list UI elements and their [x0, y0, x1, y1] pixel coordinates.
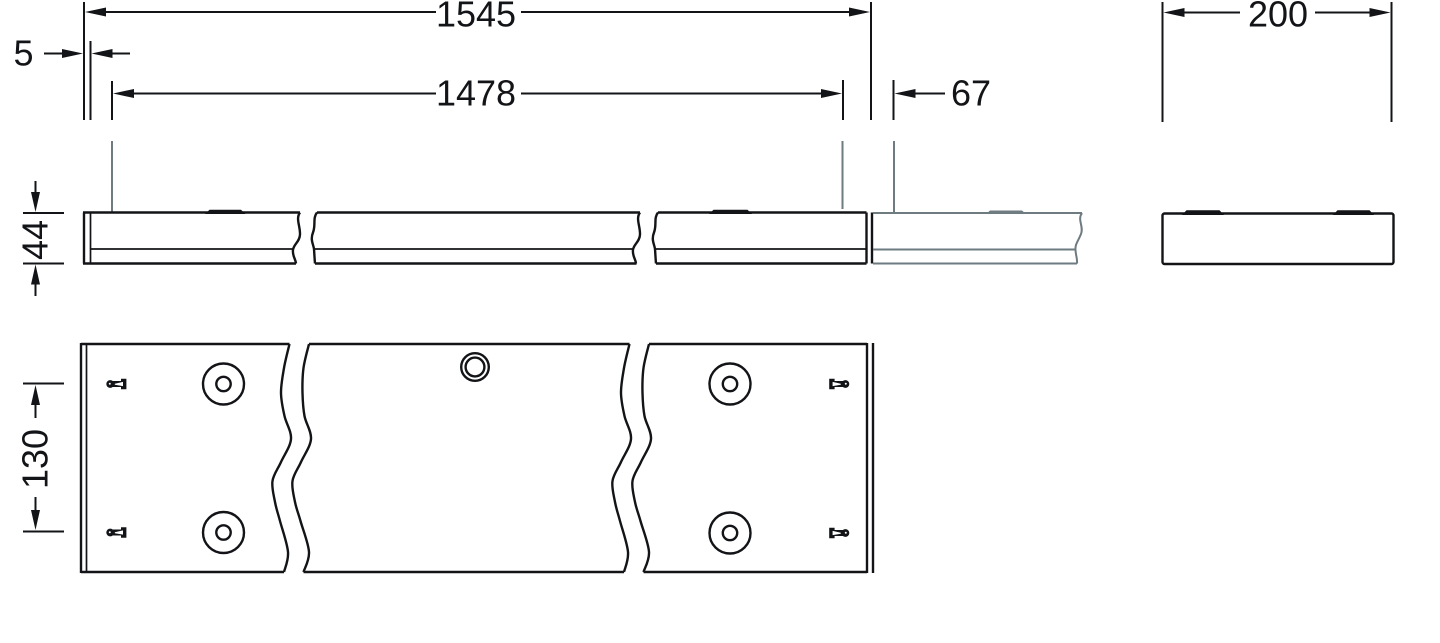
svg-text:67: 67 — [951, 73, 991, 114]
svg-text:130: 130 — [15, 429, 56, 489]
svg-text:5: 5 — [13, 33, 33, 74]
svg-text:1478: 1478 — [436, 73, 516, 114]
svg-text:1545: 1545 — [436, 0, 516, 34]
svg-text:44: 44 — [15, 220, 56, 260]
svg-text:200: 200 — [1248, 0, 1308, 34]
